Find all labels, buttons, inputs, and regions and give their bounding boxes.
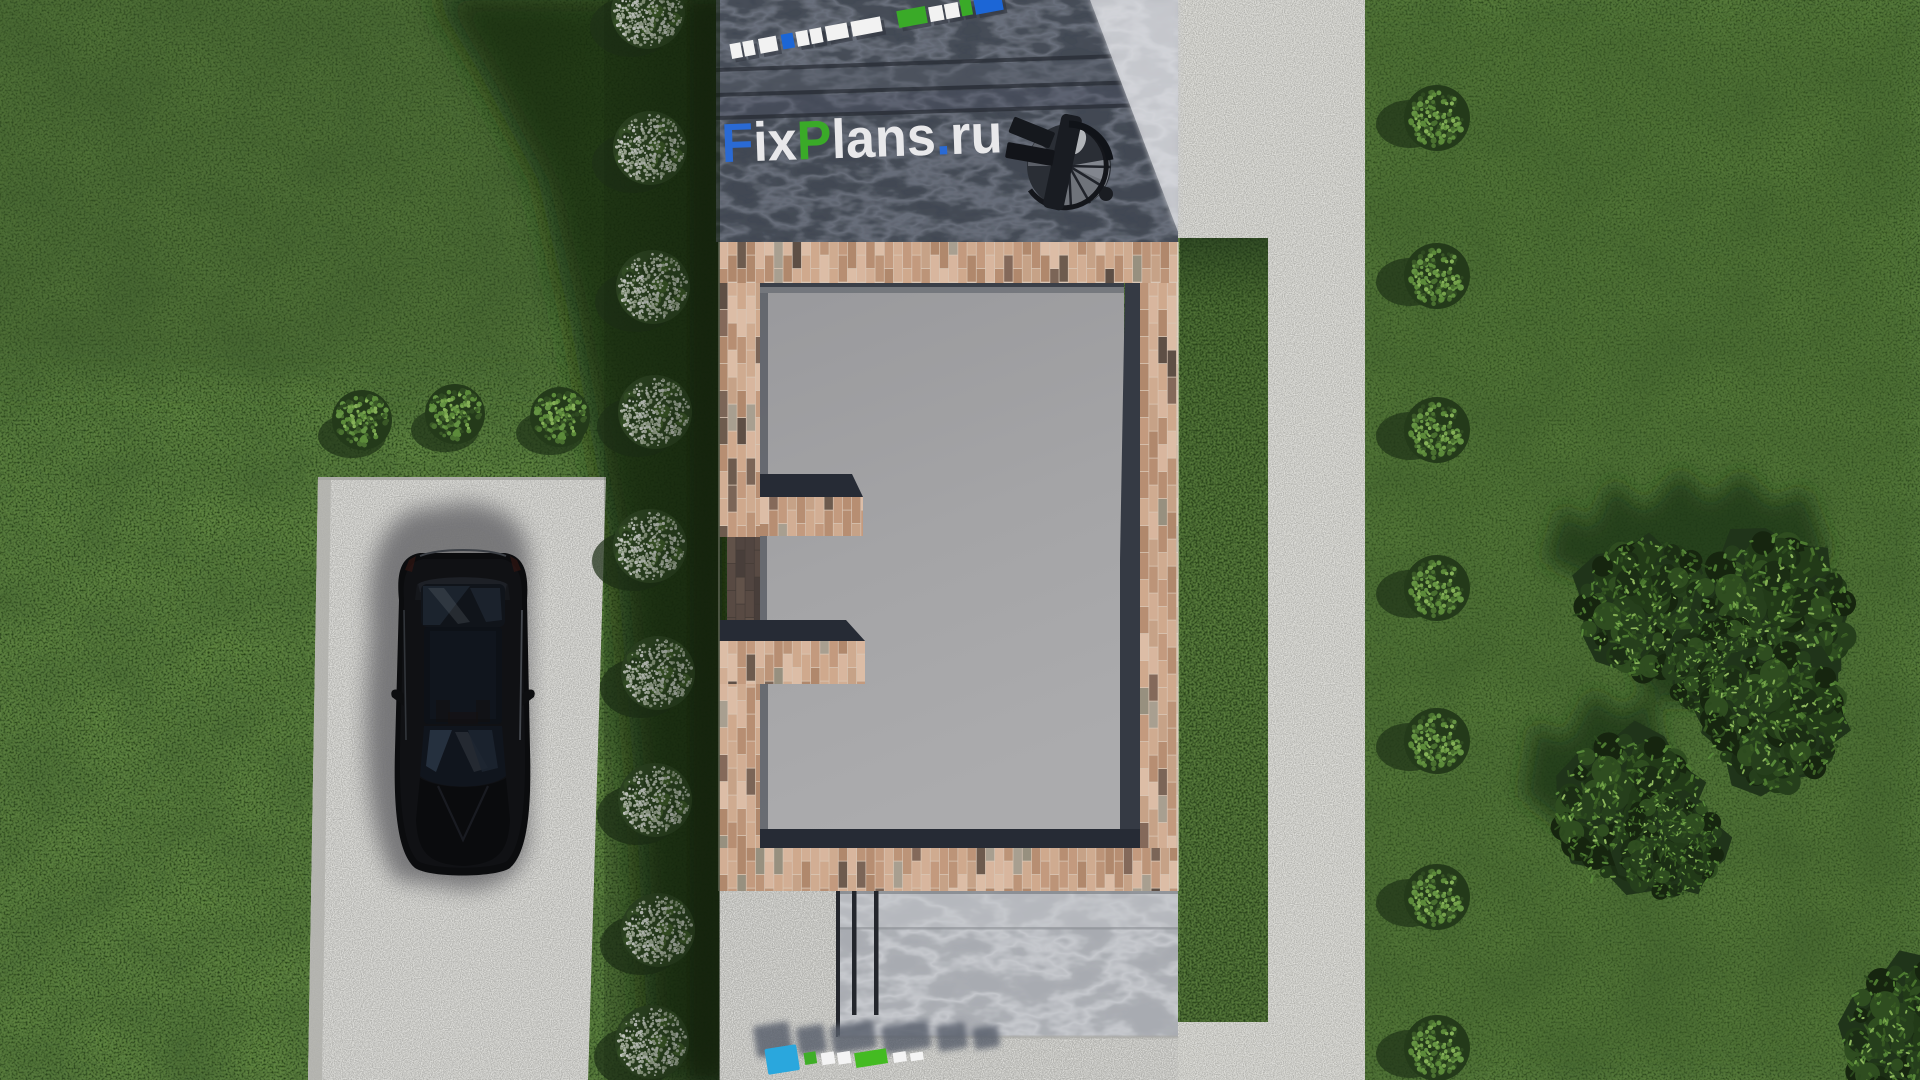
svg-text:FixPlans.ru: FixPlans.ru: [720, 102, 1003, 174]
